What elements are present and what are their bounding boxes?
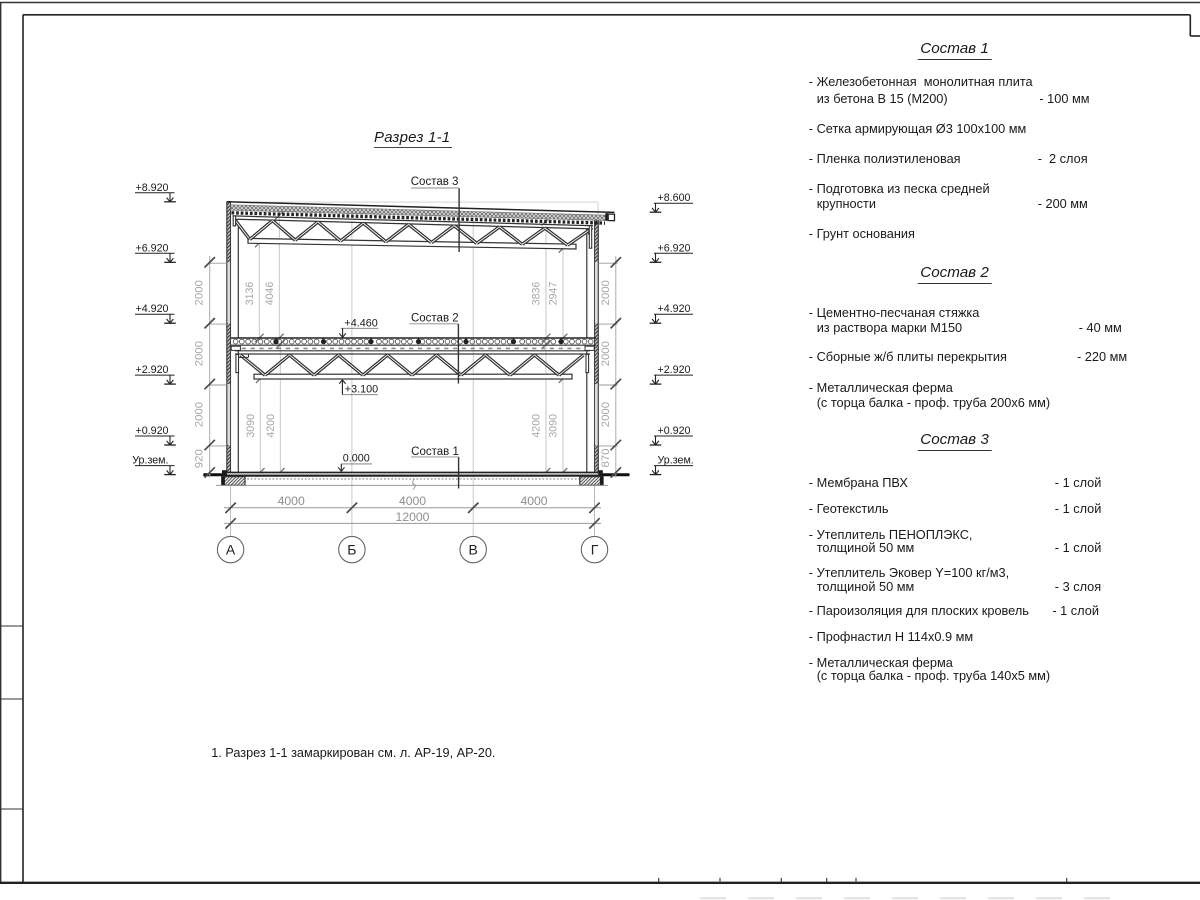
svg-text:920: 920 [194,449,206,468]
svg-text:+2.920: +2.920 [658,364,691,376]
svg-text:2000: 2000 [600,402,612,427]
svg-text:+4.920: +4.920 [136,303,169,315]
svg-text:2000: 2000 [194,402,206,427]
svg-text:2000: 2000 [194,341,206,366]
svg-text:Состав 3: Состав 3 [411,176,459,188]
svg-text:+8.920: +8.920 [136,182,169,194]
svg-text:870: 870 [600,448,612,467]
svg-text:2000: 2000 [600,341,612,366]
svg-text:Г: Г [591,542,599,558]
svg-text:Б: Б [347,542,356,558]
svg-text:4000: 4000 [399,494,426,508]
svg-text:0.000: 0.000 [343,453,370,465]
svg-text:12000: 12000 [396,510,430,524]
svg-text:4200: 4200 [265,414,277,438]
svg-text:4000: 4000 [520,494,547,508]
svg-text:Состав 2: Состав 2 [411,313,459,325]
svg-text:+4.460: +4.460 [344,318,377,330]
svg-text:3090: 3090 [245,414,257,438]
svg-text:4200: 4200 [531,414,543,438]
svg-text:+2.920: +2.920 [136,364,169,376]
svg-text:В: В [469,542,478,558]
svg-text:3090: 3090 [548,414,560,438]
svg-text:3136: 3136 [244,282,256,306]
svg-text:2000: 2000 [194,280,206,305]
svg-text:Состав 1: Состав 1 [411,446,459,458]
svg-text:+6.920: +6.920 [136,242,169,254]
svg-text:+0.920: +0.920 [136,425,169,437]
svg-text:4046: 4046 [264,282,276,306]
svg-text:+0.920: +0.920 [658,425,691,437]
svg-text:Ур.зем.: Ур.зем. [132,455,168,467]
svg-text:2000: 2000 [600,280,612,305]
svg-text:+8.600: +8.600 [658,192,691,204]
svg-text:+3.100: +3.100 [345,383,378,395]
svg-text:Ур.зем.: Ур.зем. [658,455,694,467]
svg-text:4000: 4000 [278,494,305,508]
svg-text:+4.920: +4.920 [658,303,691,315]
svg-text:+6.920: +6.920 [658,242,691,254]
svg-text:А: А [226,542,236,558]
svg-text:2947: 2947 [548,282,560,306]
svg-text:3836: 3836 [531,282,543,306]
